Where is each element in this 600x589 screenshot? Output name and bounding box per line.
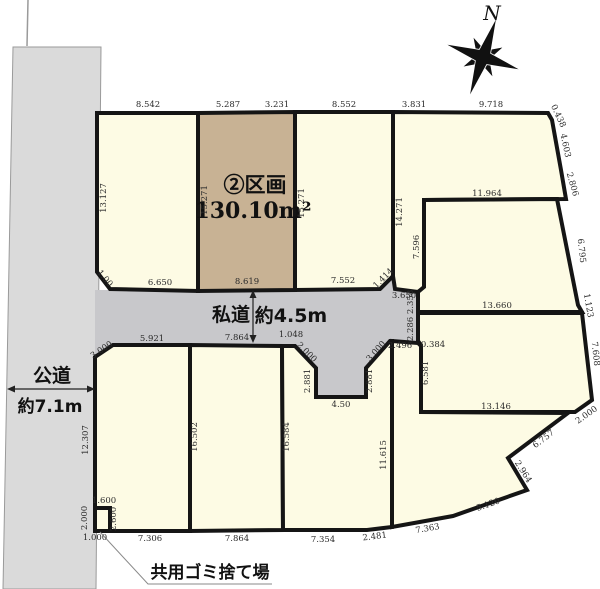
dimension-label: 0.384: [421, 340, 445, 350]
dimension-label: 7.306: [138, 534, 162, 544]
road-edge-line: [27, 0, 28, 46]
dimension-label: 2.358: [406, 290, 416, 314]
parcel-5: [418, 199, 582, 312]
dimension-label: 5.921: [140, 334, 164, 344]
plot-map: ②区画 130.10m² 私道 約4.5m 公道 約7.1m 共用ゴミ捨て場 N…: [0, 0, 600, 589]
dimension-label: 2.000: [80, 506, 90, 530]
private-road-label: 私道: [212, 303, 250, 326]
dimension-label: 4.50: [332, 400, 351, 410]
dimension-label: 7.596: [412, 235, 422, 259]
dimension-label: 15.271: [200, 185, 210, 215]
dimension-label: 1.048: [279, 330, 303, 340]
public-road-label: 公道: [33, 364, 71, 387]
dimension-label: 7.354: [311, 535, 335, 545]
dimension-label: 7.864: [225, 333, 249, 343]
dimension-label: 12.307: [81, 425, 91, 455]
dimension-label: 16.502: [190, 422, 200, 452]
public-road-width: 約7.1m: [18, 396, 83, 417]
dimension-label: 15.271: [297, 188, 307, 218]
dimension-label: 2.286: [406, 317, 416, 341]
dimension-label: 8.552: [332, 100, 356, 110]
dimension-label: 2.881: [365, 369, 375, 393]
parcel-1: [97, 113, 198, 291]
dimension-label: 5.287: [216, 100, 240, 110]
parcel-6: [418, 313, 592, 412]
garbage-area: [95, 508, 110, 531]
dimension-label: 11.615: [379, 440, 389, 470]
dimension-label: 3.831: [402, 100, 426, 110]
dimension-label: 8.619: [235, 277, 259, 287]
dimension-label: 6.650: [148, 278, 172, 288]
dimension-label: 2.881: [303, 369, 313, 393]
dimension-label: 13.127: [99, 183, 109, 213]
dimension-label: 3.231: [265, 100, 289, 110]
dimension-label: 7.864: [225, 534, 249, 544]
dimension-label: 13.660: [482, 301, 512, 311]
dimension-label: 16.584: [282, 422, 292, 452]
compass-north-label: N: [482, 1, 502, 25]
dimension-label: 2.496: [388, 341, 412, 351]
private-road-width: 約4.5m: [255, 304, 327, 327]
dimension-label: 7.552: [331, 276, 355, 286]
dimension-label: 11.964: [472, 189, 502, 199]
dimension-label: 2.600: [109, 507, 119, 531]
dimension-label: 14.271: [395, 197, 405, 227]
dimension-label: 7.608: [589, 341, 600, 366]
dimension-label: 1.600: [92, 496, 116, 506]
highlight-parcel-area: 130.10m²: [194, 198, 311, 224]
garbage-label: 共用ゴミ捨て場: [151, 562, 270, 583]
dimension-label: 1.000: [83, 533, 107, 543]
dimension-label: 2.481: [362, 531, 387, 544]
parcel-b: [190, 345, 283, 531]
highlight-parcel-label: ②区画: [224, 172, 287, 197]
dimension-label: 13.146: [481, 402, 511, 412]
dimension-label: 6.581: [421, 361, 431, 385]
dimension-label: 9.718: [479, 100, 503, 110]
dimension-label: 6.795: [575, 238, 587, 263]
dimension-label: 8.542: [136, 100, 160, 110]
